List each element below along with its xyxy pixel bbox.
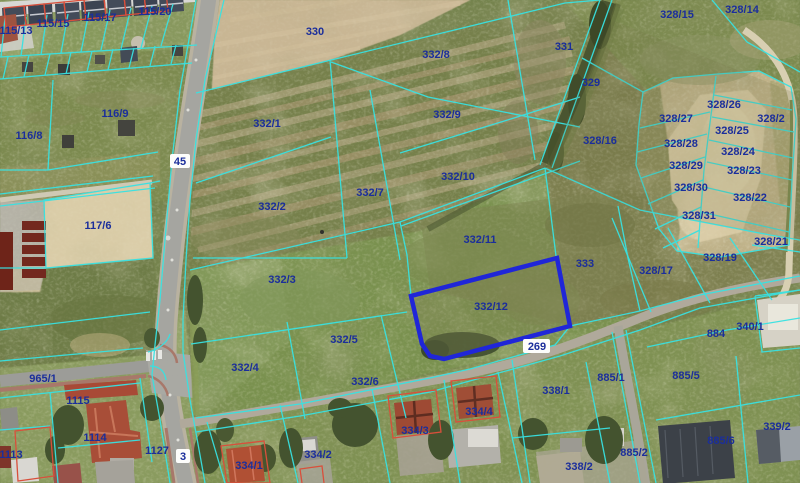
svg-text:332/2: 332/2 <box>258 201 286 213</box>
svg-text:332/5: 332/5 <box>330 334 358 346</box>
svg-text:884: 884 <box>707 328 726 340</box>
svg-text:328/28: 328/28 <box>664 138 698 150</box>
svg-text:3: 3 <box>180 451 186 463</box>
svg-text:328/27: 328/27 <box>659 113 693 125</box>
svg-text:330: 330 <box>306 26 324 38</box>
svg-text:885/2: 885/2 <box>620 447 648 459</box>
svg-text:328/29: 328/29 <box>669 160 703 172</box>
svg-text:332/11: 332/11 <box>463 234 496 246</box>
svg-text:328/25: 328/25 <box>715 125 749 137</box>
svg-text:115/17: 115/17 <box>83 12 116 24</box>
svg-text:885/6: 885/6 <box>707 435 735 447</box>
svg-text:332/3: 332/3 <box>268 274 296 286</box>
svg-text:334/1: 334/1 <box>235 460 263 472</box>
svg-text:332/7: 332/7 <box>356 187 384 199</box>
svg-text:338/2: 338/2 <box>565 461 593 473</box>
svg-text:328/22: 328/22 <box>733 192 767 204</box>
svg-text:1115: 1115 <box>66 395 89 407</box>
svg-text:331: 331 <box>555 41 573 53</box>
svg-text:332/6: 332/6 <box>351 376 379 388</box>
svg-text:339/2: 339/2 <box>763 421 791 433</box>
svg-text:332/9: 332/9 <box>433 109 461 121</box>
svg-text:332/12: 332/12 <box>474 301 508 313</box>
svg-text:328/16: 328/16 <box>583 135 617 147</box>
svg-text:333: 333 <box>576 258 594 270</box>
svg-text:328/2: 328/2 <box>757 113 785 125</box>
svg-text:328/19: 328/19 <box>703 252 737 264</box>
svg-text:116/9: 116/9 <box>102 108 129 120</box>
svg-text:334/4: 334/4 <box>465 406 493 418</box>
svg-text:332/1: 332/1 <box>253 118 281 130</box>
svg-text:1114: 1114 <box>83 432 107 444</box>
svg-text:328/21: 328/21 <box>754 236 788 248</box>
svg-text:328/30: 328/30 <box>674 182 708 194</box>
svg-text:328/17: 328/17 <box>639 265 673 277</box>
svg-text:115/13: 115/13 <box>0 25 33 37</box>
svg-text:328/26: 328/26 <box>707 99 741 111</box>
svg-text:117/6: 117/6 <box>85 220 112 232</box>
svg-text:340/1: 340/1 <box>736 321 764 333</box>
svg-text:334/2: 334/2 <box>304 449 332 461</box>
svg-text:328/24: 328/24 <box>721 146 756 158</box>
svg-text:115/15: 115/15 <box>36 18 69 30</box>
svg-text:45: 45 <box>174 156 186 168</box>
svg-text:1127: 1127 <box>145 445 169 457</box>
svg-text:328/15: 328/15 <box>660 9 694 21</box>
svg-text:115/20: 115/20 <box>138 6 171 18</box>
svg-text:1113: 1113 <box>0 449 23 461</box>
svg-text:269: 269 <box>528 341 546 353</box>
svg-text:334/3: 334/3 <box>401 425 429 437</box>
svg-text:328/31: 328/31 <box>682 210 716 222</box>
svg-text:885/5: 885/5 <box>672 370 700 382</box>
svg-text:116/8: 116/8 <box>16 130 43 142</box>
svg-text:332/4: 332/4 <box>231 362 259 374</box>
svg-text:332/10: 332/10 <box>441 171 475 183</box>
svg-text:338/1: 338/1 <box>542 385 570 397</box>
svg-text:965/1: 965/1 <box>29 373 57 385</box>
svg-text:885/1: 885/1 <box>597 372 625 384</box>
svg-text:329: 329 <box>582 77 600 89</box>
svg-text:328/14: 328/14 <box>725 4 760 16</box>
svg-text:328/23: 328/23 <box>727 165 761 177</box>
svg-text:332/8: 332/8 <box>422 49 450 61</box>
